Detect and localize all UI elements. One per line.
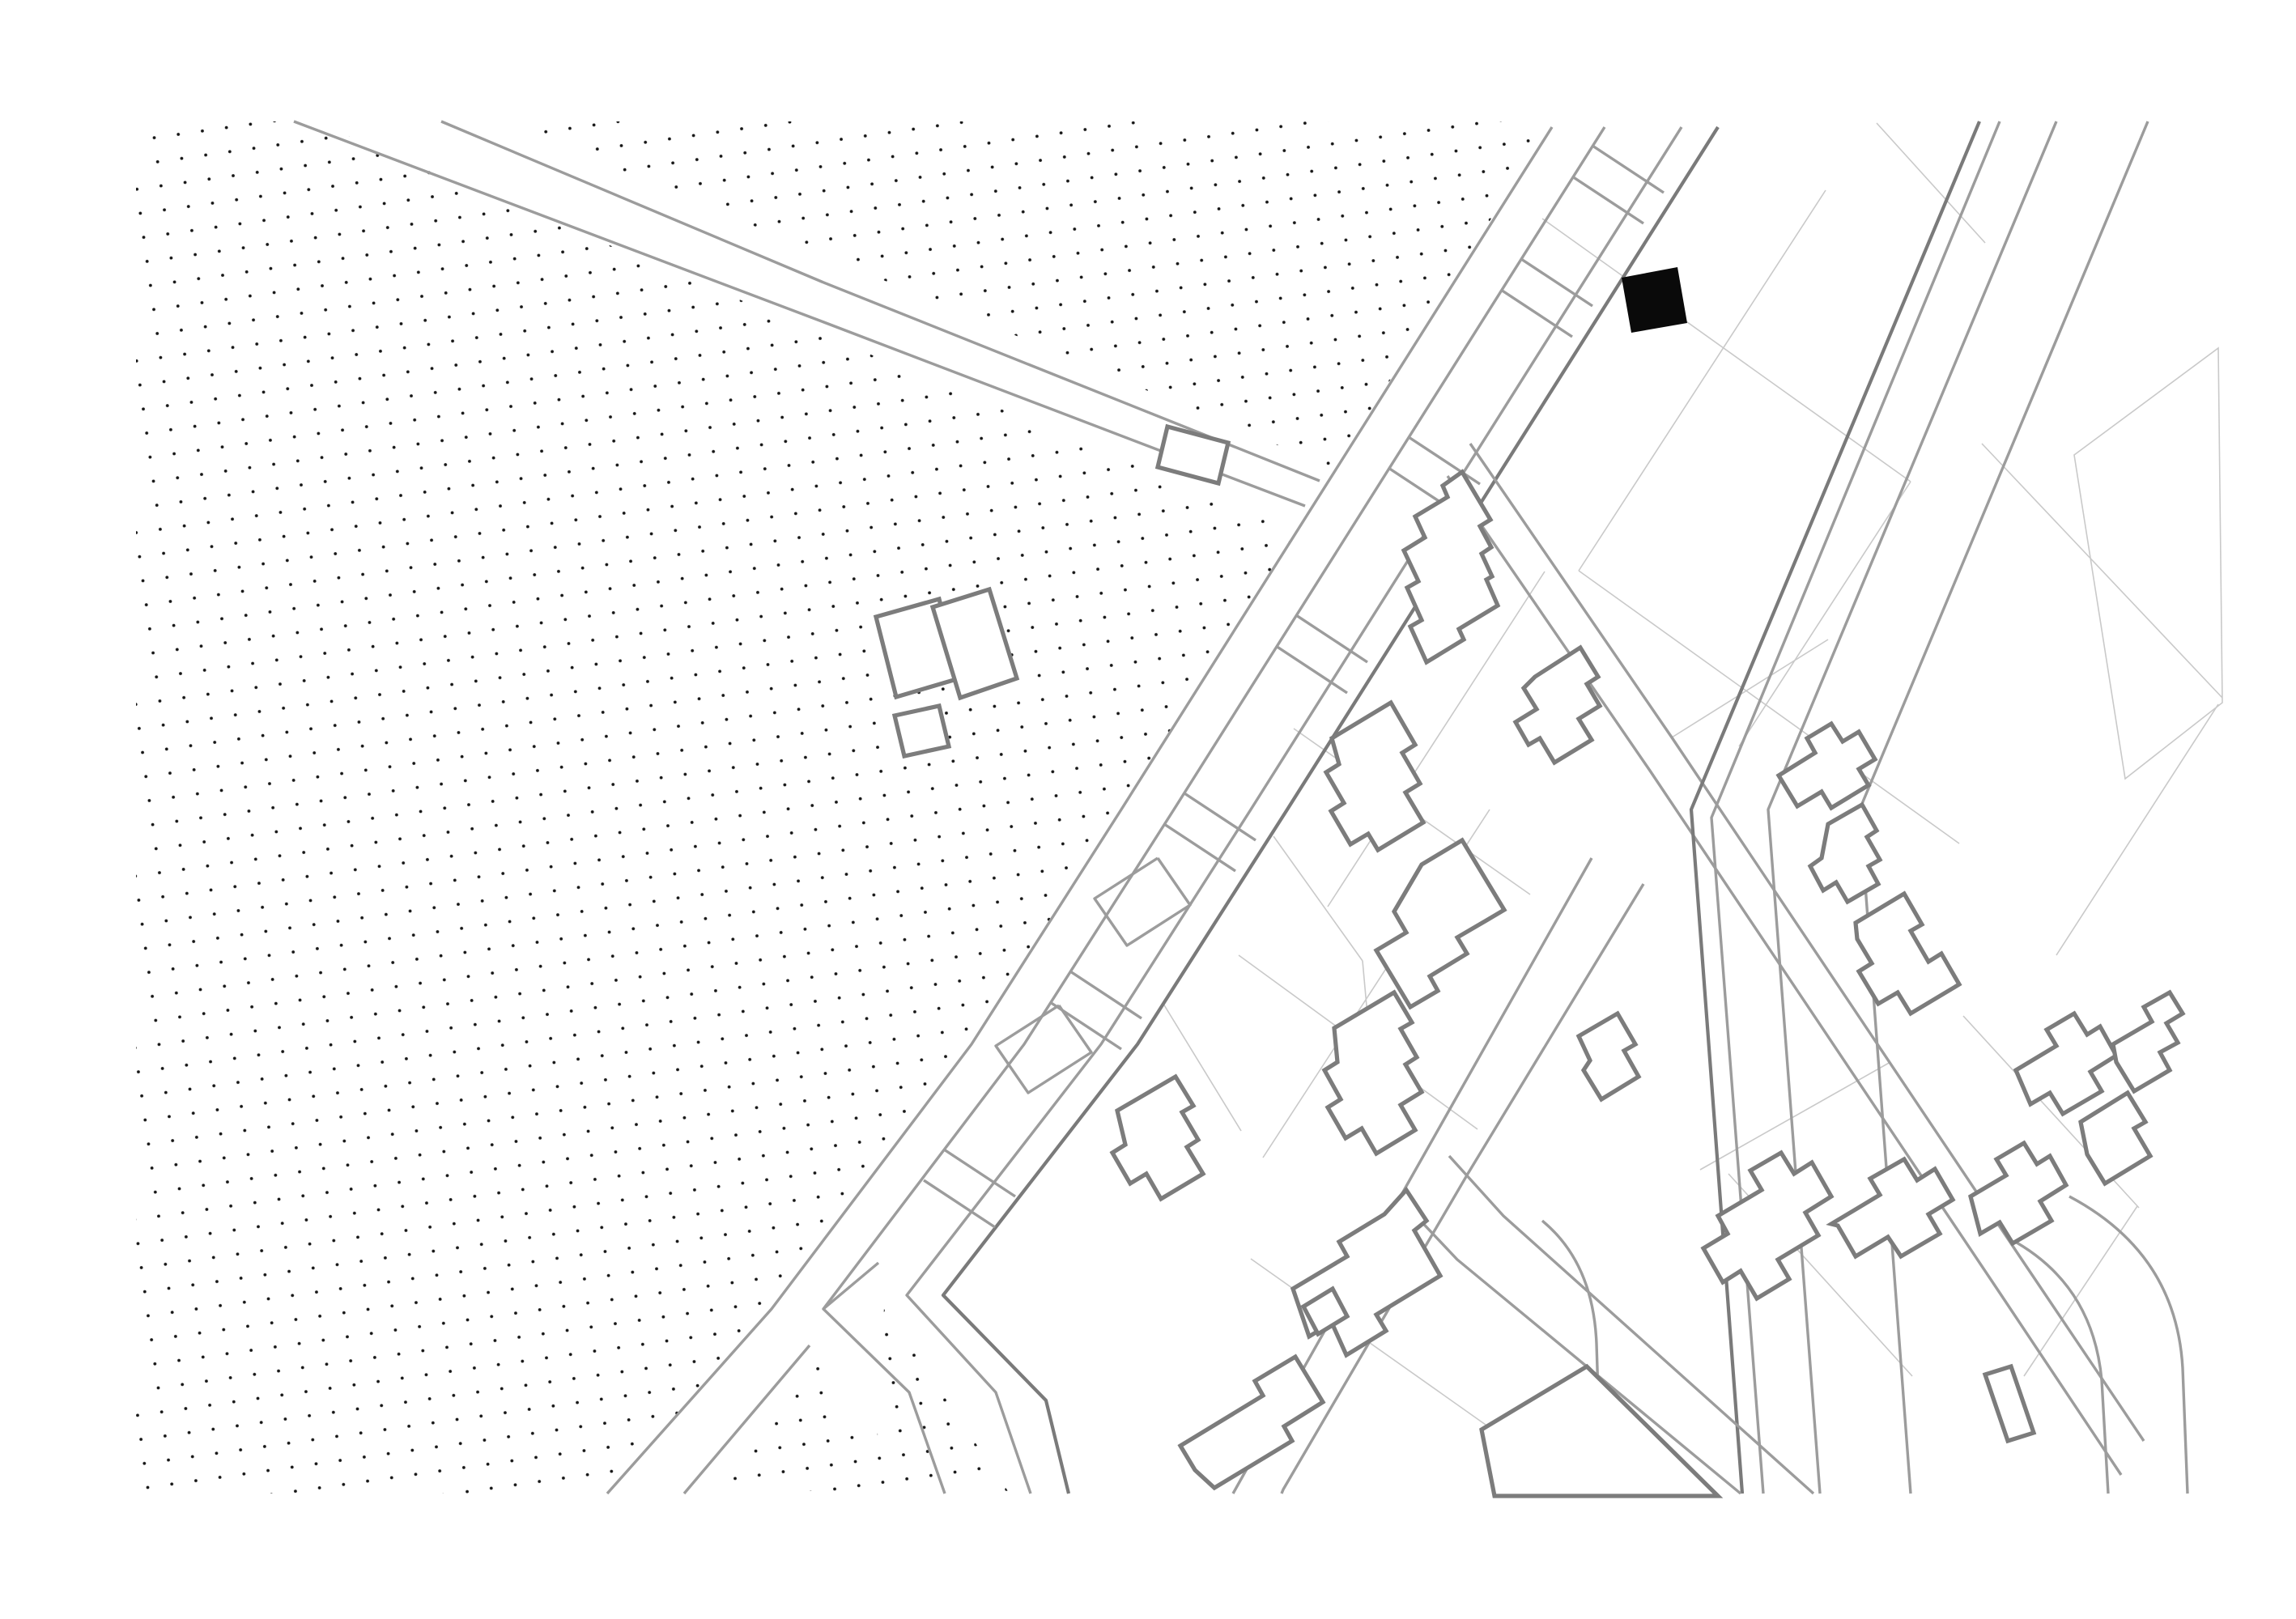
east-road-line-3 xyxy=(1860,121,2148,1494)
house-far-east-2 xyxy=(2113,992,2183,1091)
site-marker-building xyxy=(1622,267,1687,333)
ladder-stub-line-12 xyxy=(944,1149,1015,1196)
house-branch xyxy=(1579,1013,1639,1099)
ladder-stub-line-3 xyxy=(1501,290,1572,337)
house-east-3 xyxy=(1856,894,1959,1013)
ladder-stub-line-0 xyxy=(1592,146,1664,193)
ladder-stub-line-4 xyxy=(1409,437,1480,484)
building-narrow-south xyxy=(1985,1366,2034,1441)
house-far-east-3 xyxy=(2081,1093,2150,1183)
ladder-stub-line-7 xyxy=(1276,646,1347,693)
row-house-lower xyxy=(1180,1357,1323,1488)
house-south-2 xyxy=(1831,1159,1953,1256)
block-stepped-mid xyxy=(1324,992,1422,1154)
building-clipped-south xyxy=(1482,1366,1718,1496)
house-east-2 xyxy=(1810,805,1880,902)
east-road-line-2 xyxy=(1768,121,2056,1494)
house-east-1 xyxy=(1779,724,1875,808)
ladder-stub-line-9 xyxy=(1164,824,1235,871)
field-shed xyxy=(895,706,949,756)
parcel-line-3 xyxy=(1739,482,1911,746)
house-far-east-1 xyxy=(2016,1013,2116,1114)
parcel-northeast xyxy=(2074,348,2222,779)
corner-curve-path-2 xyxy=(2069,1196,2188,1494)
parcel-line-6 xyxy=(2056,704,2218,955)
block-notched-east xyxy=(1516,648,1600,763)
parcel-line-10 xyxy=(1273,836,1363,961)
south-fork-line-1 xyxy=(823,1263,878,1309)
ladder-stub-line-1 xyxy=(1572,176,1643,223)
parcel-line-1 xyxy=(1579,190,1826,571)
parcel-line-5 xyxy=(1877,123,1985,243)
site-plan-page xyxy=(0,0,2296,1619)
parcel-line-4 xyxy=(1982,444,2222,698)
southeast-branch-line-1 xyxy=(1448,476,2121,1475)
ladder-stub-line-13 xyxy=(924,1180,995,1227)
dot-wedge-fork xyxy=(716,1350,878,1491)
ladder-stub-line-10 xyxy=(1070,971,1142,1018)
entrance-clearing-north xyxy=(1095,858,1190,945)
house-south-3 xyxy=(1971,1143,2066,1243)
site-plan-svg xyxy=(0,0,2296,1619)
southeast-branch-line-0 xyxy=(1470,444,2144,1441)
house-south-1 xyxy=(1703,1153,1831,1298)
dot-wedge-east xyxy=(874,1307,1008,1491)
block-stepped-low xyxy=(1112,1077,1203,1199)
ladder-stub-line-2 xyxy=(1521,259,1592,306)
ladder-stub-line-6 xyxy=(1296,615,1367,662)
block-zigzag xyxy=(1376,840,1504,1007)
